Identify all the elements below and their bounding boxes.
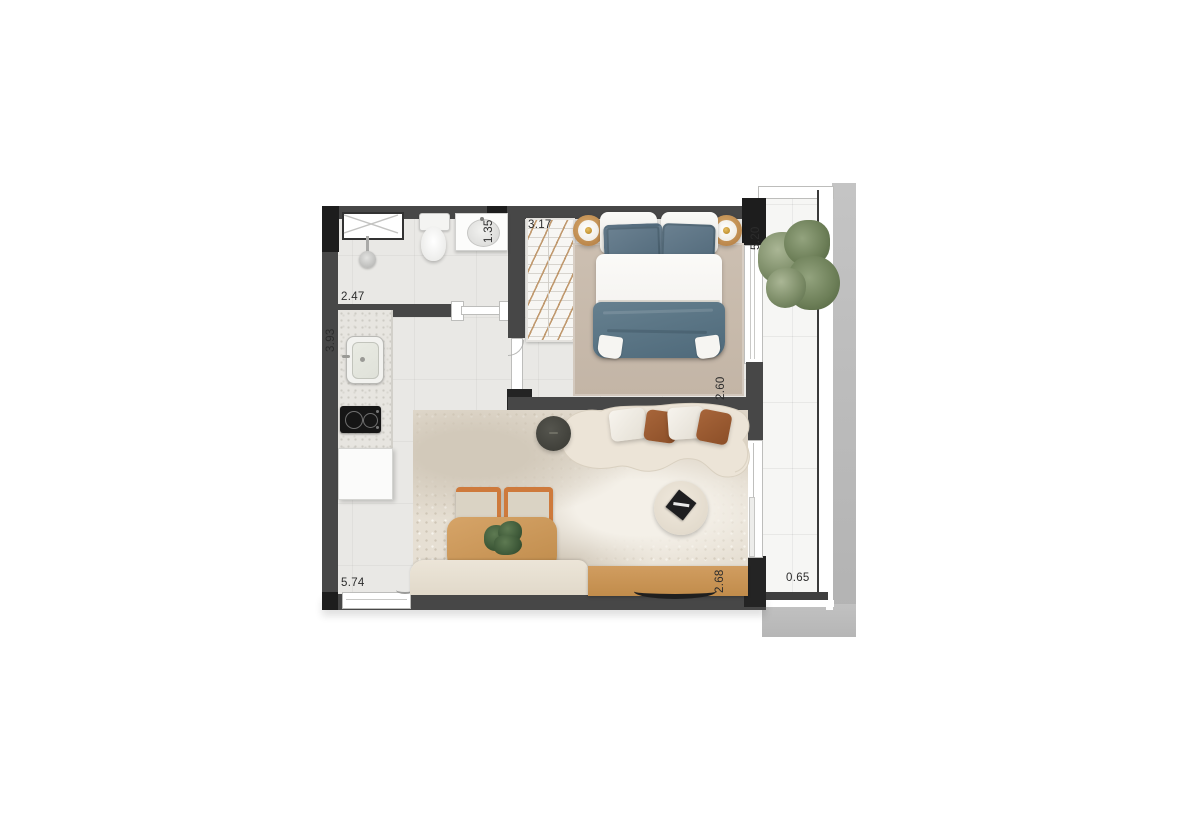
shear-wall-bottom-left [322, 592, 338, 610]
cooktop [340, 406, 381, 433]
window-bench [410, 560, 588, 595]
shower-niche [342, 212, 404, 240]
nightstand-left-lamp-bulb [585, 227, 592, 234]
kitchen-sink [346, 336, 384, 384]
wall-left [322, 206, 338, 610]
kitchen-faucet [360, 357, 365, 362]
closet-divider [548, 220, 549, 336]
nightstand-right-lamp-bulb [723, 227, 730, 234]
dining-plant [482, 521, 526, 557]
dimension-kitchen-run: 3.93 [325, 328, 338, 352]
sofa-pillow-rust-2 [695, 408, 733, 446]
dimension-vanity-width: 1.35 [483, 219, 496, 243]
exterior-slab-bottom [762, 604, 856, 637]
shower-head [359, 251, 376, 268]
wall-bedroom-west [508, 218, 525, 338]
cooktop-burner-left [345, 411, 363, 429]
bed-sheet-corner-right [695, 334, 722, 359]
coffee-table-book-page [673, 502, 689, 507]
bed-blanket-fold2 [607, 329, 707, 334]
balcony-plant [756, 220, 842, 314]
bed [596, 210, 722, 358]
shear-wall-top-left [322, 206, 339, 252]
closet [526, 218, 575, 342]
balcony-bottom-frame [758, 592, 828, 600]
coffee-table-book [666, 490, 697, 521]
cooktop-knob2 [376, 426, 379, 429]
dining-plant-leaves3 [494, 535, 522, 555]
floor-plan-canvas: 2.47 3.93 1.35 3.17 5.20 2.60 5.74 2.68 … [0, 0, 1200, 840]
dimension-living-width: 2.68 [714, 569, 727, 593]
dimension-bath-width: 2.47 [341, 291, 365, 304]
toilet-bowl [421, 227, 446, 261]
kitchen-sink-basin [352, 342, 379, 379]
bathroom-door-leaf [461, 306, 502, 315]
sliding-door-leaf [749, 497, 755, 557]
bed-blanket-fold1 [603, 309, 713, 315]
bedroom-window-glass-line2 [754, 248, 755, 359]
bedroom-window-glass-line [750, 248, 751, 359]
tv [634, 584, 716, 599]
cooktop-knob [376, 410, 379, 413]
sofa-pillow-white-1 [608, 407, 648, 442]
side-table-detail [549, 432, 558, 434]
coffee-table [654, 481, 708, 535]
shower-niche-cross [342, 212, 400, 236]
side-table [536, 416, 571, 451]
kitchen-cabinet [338, 448, 393, 500]
balcony-bottom-frame-white [756, 600, 834, 607]
vanity-counter [455, 213, 508, 251]
dimension-bedroom-width: 2.60 [715, 376, 728, 400]
living-window [342, 592, 411, 609]
dimension-closet-run: 3.17 [528, 219, 552, 232]
dimension-living-run: 5.74 [341, 577, 365, 590]
kitchen-faucet-handle [342, 355, 350, 358]
dimension-balcony-depth: 0.65 [786, 572, 810, 585]
living-window-glass-line [346, 599, 407, 600]
